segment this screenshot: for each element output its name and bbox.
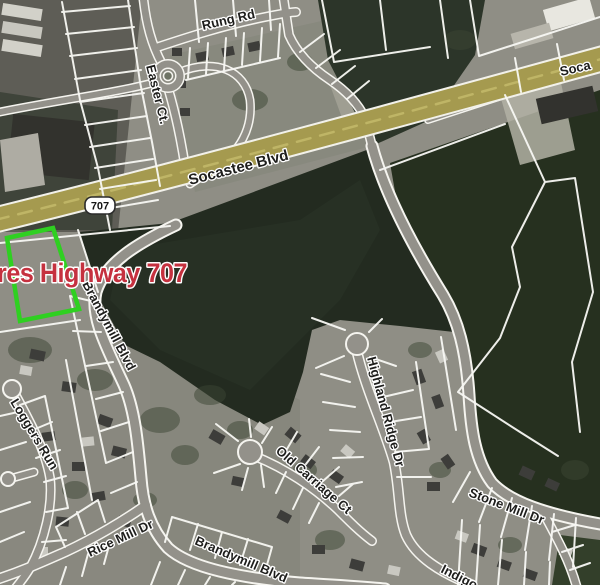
listing-annotation: res Highway 707 xyxy=(0,258,187,288)
map-canvas[interactable]: 707 Socastee Blvd Soca Rung Rd Easter Ct… xyxy=(0,0,600,585)
route-shield-label: 707 xyxy=(91,201,109,213)
satellite-map[interactable]: 707 Socastee Blvd Soca Rung Rd Easter Ct… xyxy=(0,0,600,585)
route-shield-707: 707 xyxy=(85,197,115,214)
